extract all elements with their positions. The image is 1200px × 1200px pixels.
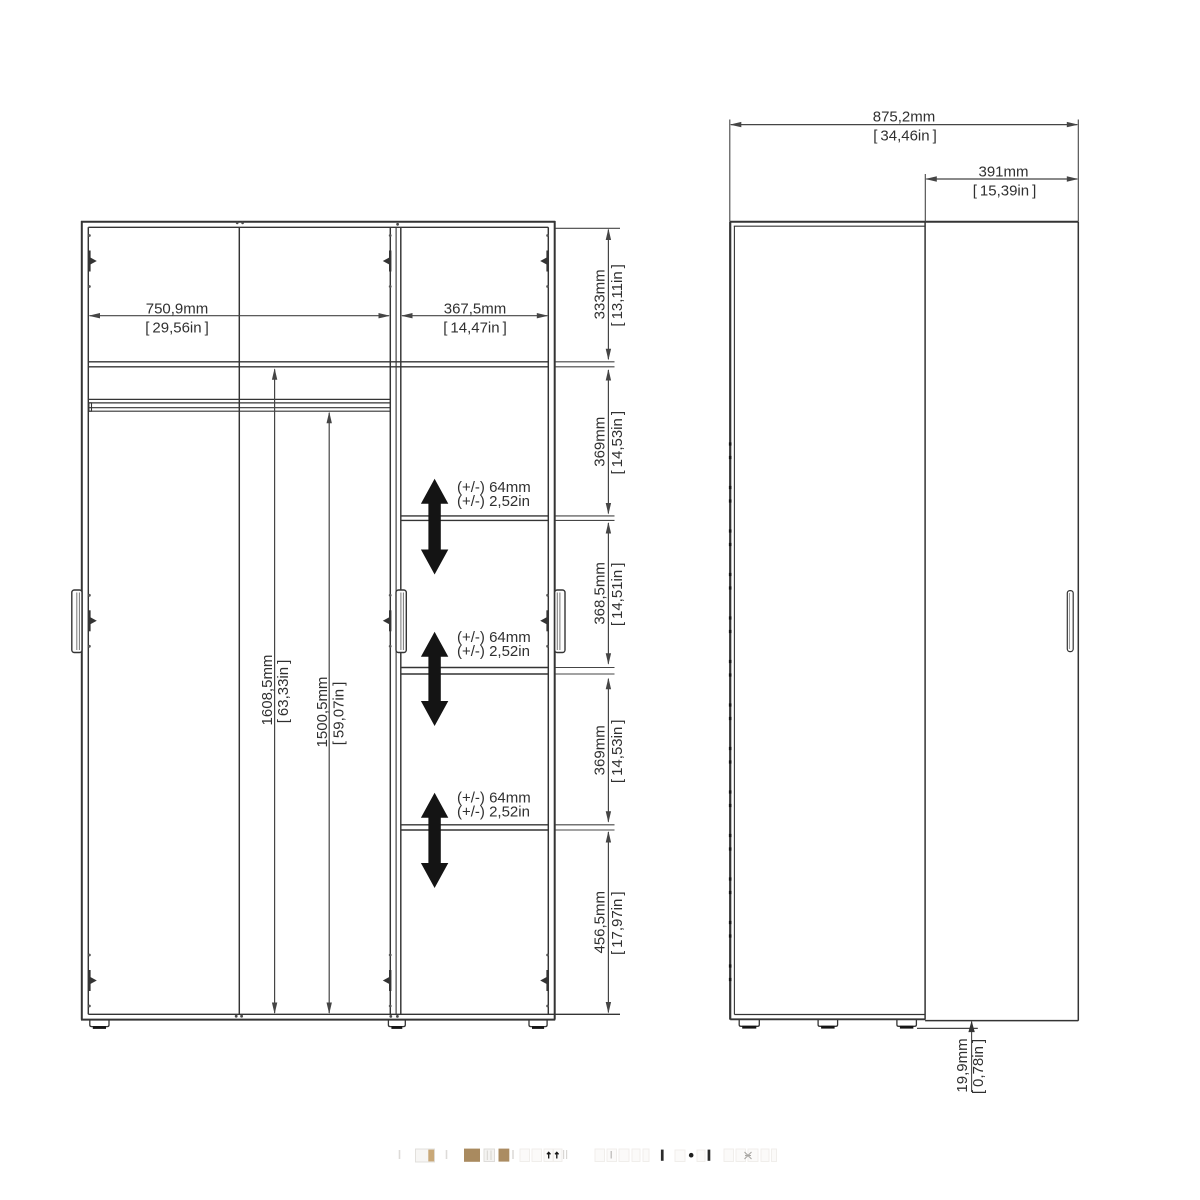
svg-text:1608,5mm: 1608,5mm [259,655,276,726]
svg-text:369mm: 369mm [591,725,608,775]
svg-text:1500,5mm: 1500,5mm [314,677,331,748]
svg-text:391mm: 391mm [978,163,1028,180]
svg-text:456,5mm: 456,5mm [591,891,608,954]
svg-text:[ 14,53in ]: [ 14,53in ] [609,411,626,475]
svg-text:(+/-) 2,52in: (+/-) 2,52in [457,493,530,510]
svg-text:369mm: 369mm [591,417,608,467]
svg-text:367,5mm: 367,5mm [444,301,507,318]
svg-text:875,2mm: 875,2mm [873,109,936,126]
svg-text:[ 63,33in ]: [ 63,33in ] [275,660,292,724]
svg-text:(+/-) 2,52in: (+/-) 2,52in [457,643,530,660]
svg-text:[ 13,11in ]: [ 13,11in ] [609,264,626,326]
svg-text:[ 15,39in ]: [ 15,39in ] [973,182,1037,199]
svg-text:[ 29,56in ]: [ 29,56in ] [145,319,209,336]
svg-text:19,9mm: 19,9mm [954,1038,971,1092]
svg-text:[ 14,53in ]: [ 14,53in ] [609,720,626,784]
svg-text:[ 14,47in ]: [ 14,47in ] [443,319,507,336]
svg-text:[ 14,51in ]: [ 14,51in ] [609,563,626,627]
svg-text:[ 0,78in ]: [ 0,78in ] [970,1039,987,1094]
svg-text:(+/-) 2,52in: (+/-) 2,52in [457,804,530,821]
svg-text:750,9mm: 750,9mm [146,301,209,318]
svg-text:[ 59,07in ]: [ 59,07in ] [331,682,348,746]
svg-text:333mm: 333mm [591,269,608,319]
svg-text:368,5mm: 368,5mm [591,562,608,625]
svg-text:[ 34,46in ]: [ 34,46in ] [873,128,937,145]
svg-text:[ 17,97in ]: [ 17,97in ] [609,891,626,955]
